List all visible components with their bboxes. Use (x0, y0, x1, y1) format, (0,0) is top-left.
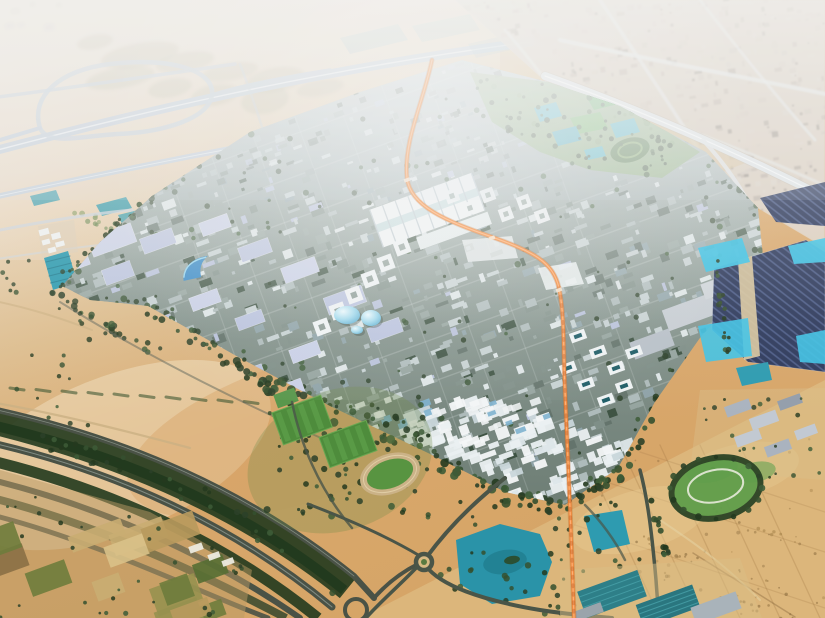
scene-canvas (0, 0, 825, 618)
atmospheric-haze-overlay (0, 0, 825, 618)
aerial-city-rendering (0, 0, 825, 618)
